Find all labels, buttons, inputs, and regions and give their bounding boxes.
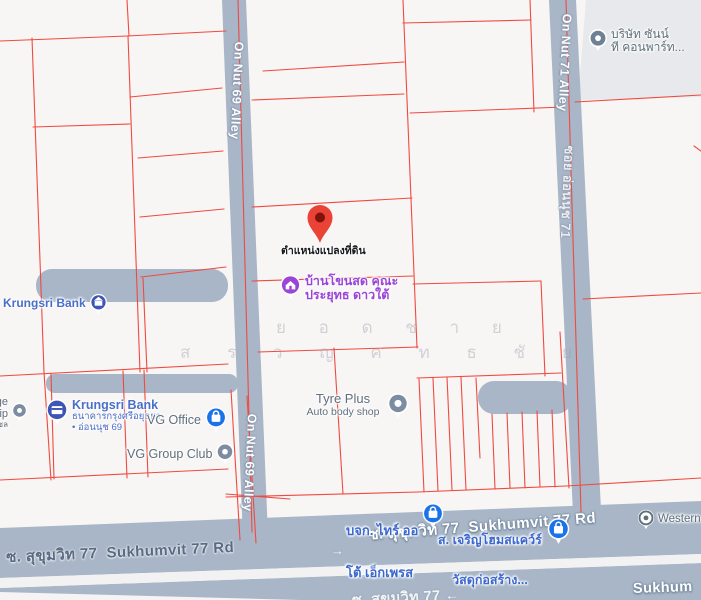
bank-icon	[45, 398, 69, 426]
poi-krungsri-bank-1[interactable]: Krungsri Bank	[3, 293, 108, 315]
poi-edge-partial[interactable]: ge ip ซล	[0, 396, 28, 430]
driveway-2	[46, 374, 238, 393]
poi-tyre-plus[interactable]: Tyre Plus Auto body shop	[303, 392, 410, 419]
poi-krungsri1-name: Krungsri Bank	[3, 297, 86, 310]
map-canvas[interactable]: ย อ ด ช า ย ส ร ว ญ ค ท ธ ชั ย lley On N…	[0, 0, 701, 600]
marker-label: ตำแหน่งแปลงที่ดิน	[281, 246, 366, 257]
poi-tire-shop[interactable]: บจก. ไทร์ ออ โต้ เอ็กเพรส Tire shop	[346, 461, 445, 600]
poi-vg-office-name: VG Office	[147, 413, 201, 427]
bank-icon	[89, 293, 108, 315]
poi-tyre-plus-name: Tyre Plus	[303, 392, 383, 407]
home-icon	[279, 274, 302, 300]
poi-home-name: บ้านโขนสด คุณะ	[305, 274, 398, 288]
arrow-right-icon: →	[331, 543, 344, 558]
place-pin-icon	[588, 28, 608, 52]
road-label-onnut71-th: ซอย อ่อนนุช 71	[555, 145, 580, 239]
watermark-row2: ส ร ว ญ ค ท ธ ชั ย	[180, 339, 588, 366]
poi-krungsri-bank-2[interactable]: Krungsri Bank ธนาคารกรุงศรีอยุธยา • อ่อน…	[45, 398, 161, 433]
place-pin-icon	[637, 509, 655, 530]
place-pin-icon	[386, 392, 410, 419]
poi-home[interactable]: บ้านโขนสด คุณะ ประยุทธ ดาวใต้	[279, 274, 398, 302]
poi-vg-group-name: VG Group Club	[127, 447, 212, 461]
place-pin-icon	[215, 442, 235, 465]
map-pin-icon[interactable]	[305, 202, 335, 244]
poi-company[interactable]: บริษัท ซันน์ ที คอนพาร์ท...	[588, 28, 685, 55]
shop-bag-icon	[546, 517, 571, 545]
office-bag-icon	[204, 406, 228, 433]
poi-hardware-store[interactable]: ส. เจริญโฮมสแคว์ร์ วัสดุก่อสร้าง... Hard…	[438, 472, 571, 600]
place-pin-icon	[11, 402, 28, 422]
poi-western-name: Western	[658, 513, 701, 526]
road-label-sukhum-partial: Sukhum	[633, 579, 693, 597]
poi-vg-group-club[interactable]: VG Group Club	[127, 442, 235, 465]
driveway-3	[478, 381, 572, 414]
poi-vg-office[interactable]: VG Office	[147, 406, 228, 433]
watermark-row1: ย อ ด ช า ย	[276, 314, 516, 341]
poi-western-partial[interactable]: Western	[637, 509, 701, 530]
